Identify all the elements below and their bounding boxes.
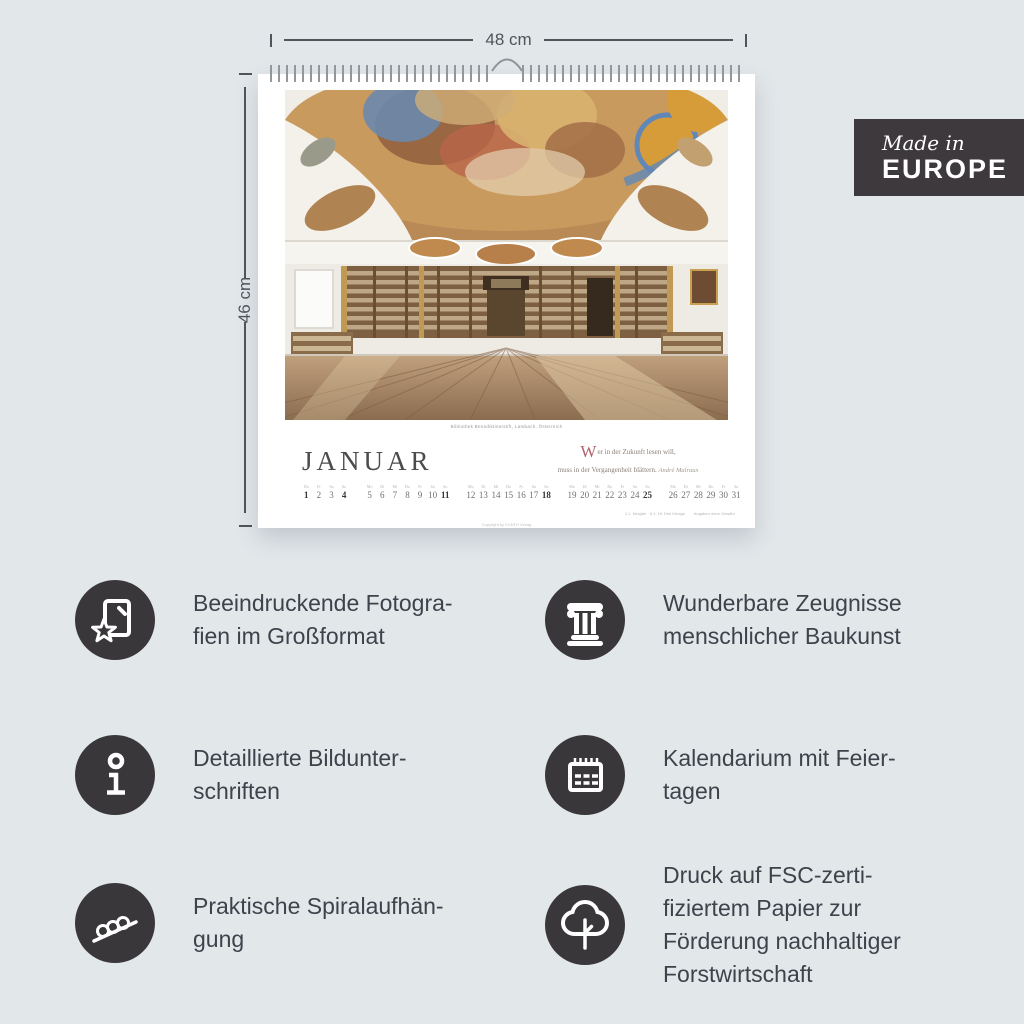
calendar-day: Do1: [300, 484, 313, 500]
calendar-day: So4: [338, 484, 351, 500]
dimension-line: [284, 39, 473, 41]
column-icon: [545, 580, 625, 660]
feature-spiral: Praktische Spiralaufhän- gung: [75, 883, 515, 963]
calendar-day: Sa17: [528, 484, 541, 500]
month-quote: Wer in der Zukunft lesen will, muss in d…: [508, 438, 748, 477]
dimension-tick: [239, 525, 252, 527]
calendar-day: Mi28: [692, 484, 705, 500]
calendar-day: Sa31: [730, 484, 743, 500]
month-title: JANUAR: [302, 446, 433, 477]
dimension-tick: [745, 34, 747, 47]
calendar-day: Di13: [477, 484, 490, 500]
calendar-icon: [545, 735, 625, 815]
spiral-icon: [75, 883, 155, 963]
library-photo-illustration: [285, 90, 728, 420]
calendar-day: Sa3: [325, 484, 338, 500]
info-icon: [75, 735, 155, 815]
calendar-day: Sa24: [629, 484, 642, 500]
hanger-icon: [491, 56, 523, 72]
height-dimension: 46 cm: [237, 73, 253, 527]
calendar-day: So11: [439, 484, 452, 500]
calendar-day: Mo19: [566, 484, 579, 500]
photo-star-icon: [75, 580, 155, 660]
feature-architecture: Wunderbare Zeugnisse menschlicher Baukun…: [545, 580, 1005, 660]
calendar-footnotes: 1.1. Neujahr · 6.1. Hl. Drei Könige Anga…: [625, 511, 735, 516]
calendar-day: Di27: [679, 484, 692, 500]
quote-initial: W: [580, 442, 596, 461]
calendar-day: Fr30: [717, 484, 730, 500]
calendar-photo-library: [285, 90, 728, 420]
calendar-day: Mi14: [490, 484, 503, 500]
feature-fsc-paper: Druck auf FSC-zerti- fiziertem Papier zu…: [545, 859, 1005, 991]
calendar-day: Do8: [401, 484, 414, 500]
spiral-coil-right: [522, 65, 744, 82]
copyright-line: Copyright by KUNTH Verlag: [258, 522, 755, 527]
dimension-line: [244, 322, 246, 513]
disclaimer-note: Angaben ohne Gewähr: [694, 511, 735, 516]
feature-photography: Beeindruckende Fotogra- fien im Großform…: [75, 580, 515, 660]
photo-caption: Bibliothek Benediktinerstift, Lambach, Ö…: [258, 424, 755, 429]
feature-text: Kalendarium mit Feier- tagen: [663, 742, 896, 808]
dimension-line: [544, 39, 733, 41]
quote-line2: muss in der Vergangenheit blättern.: [558, 466, 657, 474]
feature-text: Wunderbare Zeugnisse menschlicher Baukun…: [663, 587, 902, 653]
calendar-day: So25: [641, 484, 654, 500]
calendar-day: Fr2: [313, 484, 326, 500]
calendar-day: Do22: [603, 484, 616, 500]
calendar-day: Di20: [578, 484, 591, 500]
calendar-day: Fr23: [616, 484, 629, 500]
calendar-day: Di6: [376, 484, 389, 500]
product-image: 48 cm 46 cm Made in EUROPE: [0, 0, 1024, 1024]
calendar-day: Fr16: [515, 484, 528, 500]
feature-text: Detaillierte Bildunter- schriften: [193, 742, 406, 808]
dimension-tick: [239, 73, 252, 75]
made-in-europe-badge: Made in EUROPE: [854, 119, 1024, 196]
badge-europe: EUROPE: [882, 154, 1024, 184]
holidays-note: 1.1. Neujahr · 6.1. Hl. Drei Könige: [625, 511, 685, 516]
calendar-day: Mo5: [363, 484, 376, 500]
calendar-day: So18: [540, 484, 553, 500]
calendar-days: Do1Fr2Sa3So4Mo5Di6Mi7Do8Fr9Sa10So11Mo12D…: [300, 484, 742, 500]
calendar-day: Mi21: [591, 484, 604, 500]
calendar-day: Mo26: [667, 484, 680, 500]
calendar-day: Mi7: [389, 484, 402, 500]
calendar-day: Fr9: [414, 484, 427, 500]
feature-text: Beeindruckende Fotogra- fien im Großform…: [193, 587, 453, 653]
feature-text: Praktische Spiralaufhän- gung: [193, 890, 444, 956]
spiral-coil-left: [270, 65, 492, 82]
calendar-sheet: Bibliothek Benediktinerstift, Lambach, Ö…: [258, 74, 755, 528]
feature-kalendarium: Kalendarium mit Feier- tagen: [545, 735, 1005, 815]
calendar-day: Do15: [502, 484, 515, 500]
calendar-day: Mo12: [465, 484, 478, 500]
calendar-day: Sa10: [426, 484, 439, 500]
quote-line1: er in der Zukunft lesen will,: [597, 448, 675, 456]
feature-text: Druck auf FSC-zerti- fiziertem Papier zu…: [663, 859, 901, 991]
height-dimension-label: 46 cm: [235, 277, 255, 323]
width-dimension-label: 48 cm: [485, 30, 531, 50]
feature-captions: Detaillierte Bildunter- schriften: [75, 735, 515, 815]
quote-attribution: André Malraux: [658, 467, 698, 474]
dimension-tick: [270, 34, 272, 47]
badge-made-in: Made in: [882, 132, 1024, 154]
calendar-day: Do29: [705, 484, 718, 500]
dimension-line: [244, 87, 246, 278]
tree-icon: [545, 885, 625, 965]
width-dimension: 48 cm: [270, 30, 747, 50]
